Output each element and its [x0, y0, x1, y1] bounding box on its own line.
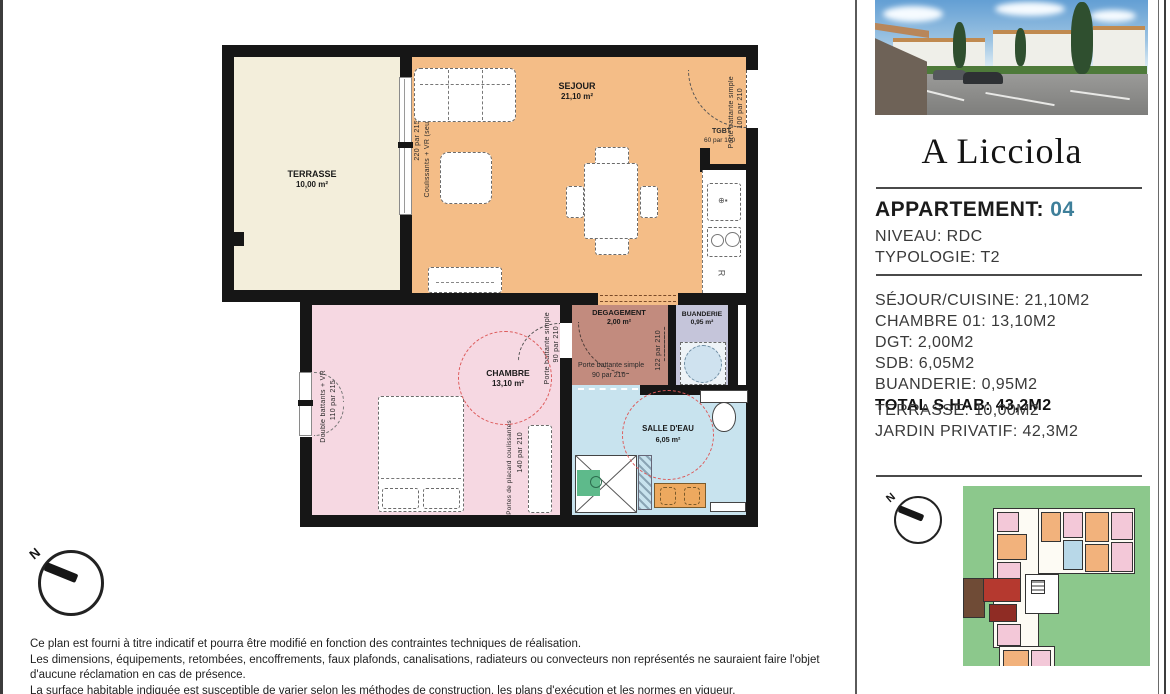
buanderie-name: BUANDERIE	[672, 310, 732, 319]
kitchen-faucet-icon: ⊕▪	[718, 196, 728, 205]
tree-shape	[953, 22, 966, 68]
dining-table	[584, 163, 638, 239]
site-unit	[1111, 542, 1133, 572]
disclaimer-line: La surface habitable indiquée est suscep…	[30, 684, 830, 694]
site-unit	[1003, 650, 1029, 666]
degagement-label: DEGAGEMENT 2,00 m²	[574, 308, 664, 328]
chambre-window-tick	[298, 400, 313, 406]
vanity-sink-icon	[684, 487, 700, 505]
tgbt-label: TGBT	[712, 128, 731, 135]
sejour-label: SEJOUR 21,10 m²	[532, 80, 622, 103]
info-panel: A Licciola APPARTEMENT: 04 NIVEAU: RDC T…	[856, 0, 1158, 694]
surface-line: DGT: 2,00M2	[875, 332, 1090, 353]
typologie-line: TYPOLOGIE: T2	[875, 247, 1000, 268]
site-unit-highlight	[983, 578, 1021, 602]
wall	[300, 437, 312, 527]
site-unit-highlight	[989, 604, 1017, 622]
sofa-cushion-line	[448, 70, 449, 120]
wall	[300, 515, 758, 527]
tree-shape	[1071, 2, 1093, 74]
compass-icon	[38, 550, 104, 616]
cloud-shape	[1090, 10, 1136, 22]
shower-drain-icon	[590, 476, 602, 488]
exterior-line: JARDIN PRIVATIF: 42,3M2	[875, 421, 1078, 442]
divider-rule	[876, 475, 1142, 477]
site-unit	[997, 512, 1019, 532]
site-unit	[997, 624, 1021, 646]
terrasse-bay-type-label: Coulissants + VR (seuil	[424, 118, 431, 197]
tree-shape	[1015, 28, 1026, 66]
dining-chair	[640, 186, 658, 218]
divider-rule	[876, 274, 1142, 276]
niveau-line: NIVEAU: RDC	[875, 226, 983, 247]
wall	[393, 45, 758, 57]
foreground-roof-shape	[875, 22, 929, 38]
towel-radiator	[710, 502, 746, 512]
bed-pillow	[423, 488, 460, 509]
wall	[560, 305, 572, 323]
terrasse-name: TERRASSE	[252, 168, 372, 180]
buanderie-area: 0,95 m²	[672, 319, 732, 328]
sofa	[414, 68, 516, 122]
disclaimer: Ce plan est fourni à titre indicatif et …	[30, 637, 830, 694]
terrasse-area: 10,00 m²	[252, 180, 372, 191]
logo-text: A Licciola	[856, 130, 1148, 172]
wall	[222, 45, 412, 57]
placard-size-label: 140 par 210	[517, 432, 524, 473]
site-stair-icon	[1031, 580, 1045, 594]
tgbt-size-label: 60 par 100	[704, 137, 735, 144]
degagement-name: DEGAGEMENT	[574, 308, 664, 318]
parked-car-shape	[963, 72, 1003, 84]
disclaimer-line: Les dimensions, équipements, retombées, …	[30, 653, 830, 669]
compass-n-label: N	[26, 545, 43, 563]
sofa-cushion-line	[482, 70, 483, 120]
wall	[400, 215, 412, 302]
wall	[746, 128, 758, 527]
chambre-label: CHAMBRE 13,10 m²	[465, 368, 551, 390]
wall	[234, 232, 244, 246]
chambre-door-size-label: 90 par 210	[553, 326, 560, 362]
sideboard-marks	[436, 282, 494, 283]
plan-sheet: 220 par 215 Coulissants + VR (seuil Port…	[0, 0, 1170, 694]
salle-deau-label: SALLE D'EAU 6,05 m²	[622, 424, 714, 444]
site-unit-highlight-terrace	[963, 578, 985, 618]
entry-door-size-label: 100 par 210	[737, 88, 744, 129]
degagement-area: 2,00 m²	[574, 318, 664, 327]
surface-line: CHAMBRE 01: 13,10M2	[875, 311, 1090, 332]
site-compass-n-label: N	[884, 491, 898, 505]
chambre-area: 13,10 m²	[465, 379, 551, 390]
floor-plan: 220 par 215 Coulissants + VR (seuil Port…	[0, 0, 855, 630]
placard-label: Portes de placard coulissantes	[506, 420, 513, 515]
dgt-door-size-label: 90 par 210	[592, 372, 625, 379]
coffee-table	[440, 152, 492, 204]
terrasse-label: TERRASSE 10,00 m²	[252, 168, 372, 191]
exterior-list: TERRASSE: 10,00M2 JARDIN PRIVATIF: 42,3M…	[875, 400, 1078, 442]
surface-line: BUANDERIE: 0,95M2	[875, 374, 1090, 395]
dining-chair	[595, 237, 629, 255]
apartment-number: 04	[1050, 198, 1074, 221]
sofa-cushion-line	[420, 84, 510, 85]
entry-door-opening	[746, 70, 758, 128]
cloud-shape	[883, 6, 943, 22]
surface-line: SÉJOUR/CUISINE: 21,10M2	[875, 290, 1090, 311]
retombee-line	[600, 295, 676, 296]
room-closet-white	[738, 305, 746, 385]
vanity-sink-icon	[660, 487, 676, 505]
site-unit	[1031, 650, 1051, 666]
sejour-name: SEJOUR	[532, 80, 622, 92]
surface-line: SDB: 6,05M2	[875, 353, 1090, 374]
sde-door-dashes	[578, 388, 638, 390]
site-unit	[1063, 540, 1083, 570]
buanderie-label: BUANDERIE 0,95 m²	[672, 310, 732, 328]
terrasse-bay-tick	[398, 142, 413, 148]
site-unit	[1085, 544, 1109, 572]
divider-rule	[876, 187, 1142, 189]
site-unit	[1041, 512, 1061, 542]
wall	[678, 293, 758, 305]
apartment-heading: APPARTEMENT: 04	[875, 198, 1075, 222]
salle-deau-area: 6,05 m²	[622, 435, 714, 445]
right-border-inner	[1158, 0, 1159, 694]
wall	[222, 45, 234, 302]
bed-pillow	[382, 488, 419, 509]
closet-doors	[528, 425, 552, 513]
parked-car-shape	[933, 70, 967, 80]
surface-list: SÉJOUR/CUISINE: 21,10M2 CHAMBRE 01: 13,1…	[875, 290, 1090, 416]
exterior-line: TERRASSE: 10,00M2	[875, 400, 1078, 421]
chambre-window-type-label: Double battants + VR	[320, 370, 327, 443]
wall	[746, 45, 758, 70]
wall	[560, 358, 572, 527]
disclaimer-line: Ce plan est fourni à titre indicatif et …	[30, 637, 830, 653]
terrasse-bay-size-label: 220 par 215	[414, 120, 421, 161]
salle-deau-name: SALLE D'EAU	[622, 424, 714, 435]
wall	[300, 293, 312, 377]
bed-fold-line	[381, 478, 461, 479]
toilet-bowl	[712, 402, 736, 432]
site-unit	[997, 534, 1027, 560]
dining-chair	[566, 186, 584, 218]
sideboard	[428, 267, 502, 293]
stove-burner-icon	[711, 234, 724, 247]
site-unit	[1111, 512, 1133, 540]
site-plan	[963, 486, 1150, 666]
dgt-door-type-label: Porte battante simple	[578, 362, 644, 369]
disclaimer-line: d'aucune réclamation en cas de présence.	[30, 668, 830, 684]
washing-machine-drum	[684, 345, 722, 383]
site-unit	[1063, 512, 1083, 538]
sejour-area: 21,10 m²	[532, 92, 622, 103]
chambre-name: CHAMBRE	[465, 368, 551, 379]
site-unit	[1085, 512, 1109, 542]
stove-burner-icon	[725, 232, 740, 247]
fridge-label: R	[716, 270, 726, 277]
chambre-window-size-label: 110 par 215	[330, 380, 337, 420]
right-border-outer	[1164, 0, 1166, 694]
wall	[300, 293, 598, 305]
cloud-shape	[995, 2, 1065, 16]
retombee-line	[600, 301, 676, 302]
apartment-label: APPARTEMENT:	[875, 198, 1044, 221]
project-render-photo	[875, 0, 1148, 115]
